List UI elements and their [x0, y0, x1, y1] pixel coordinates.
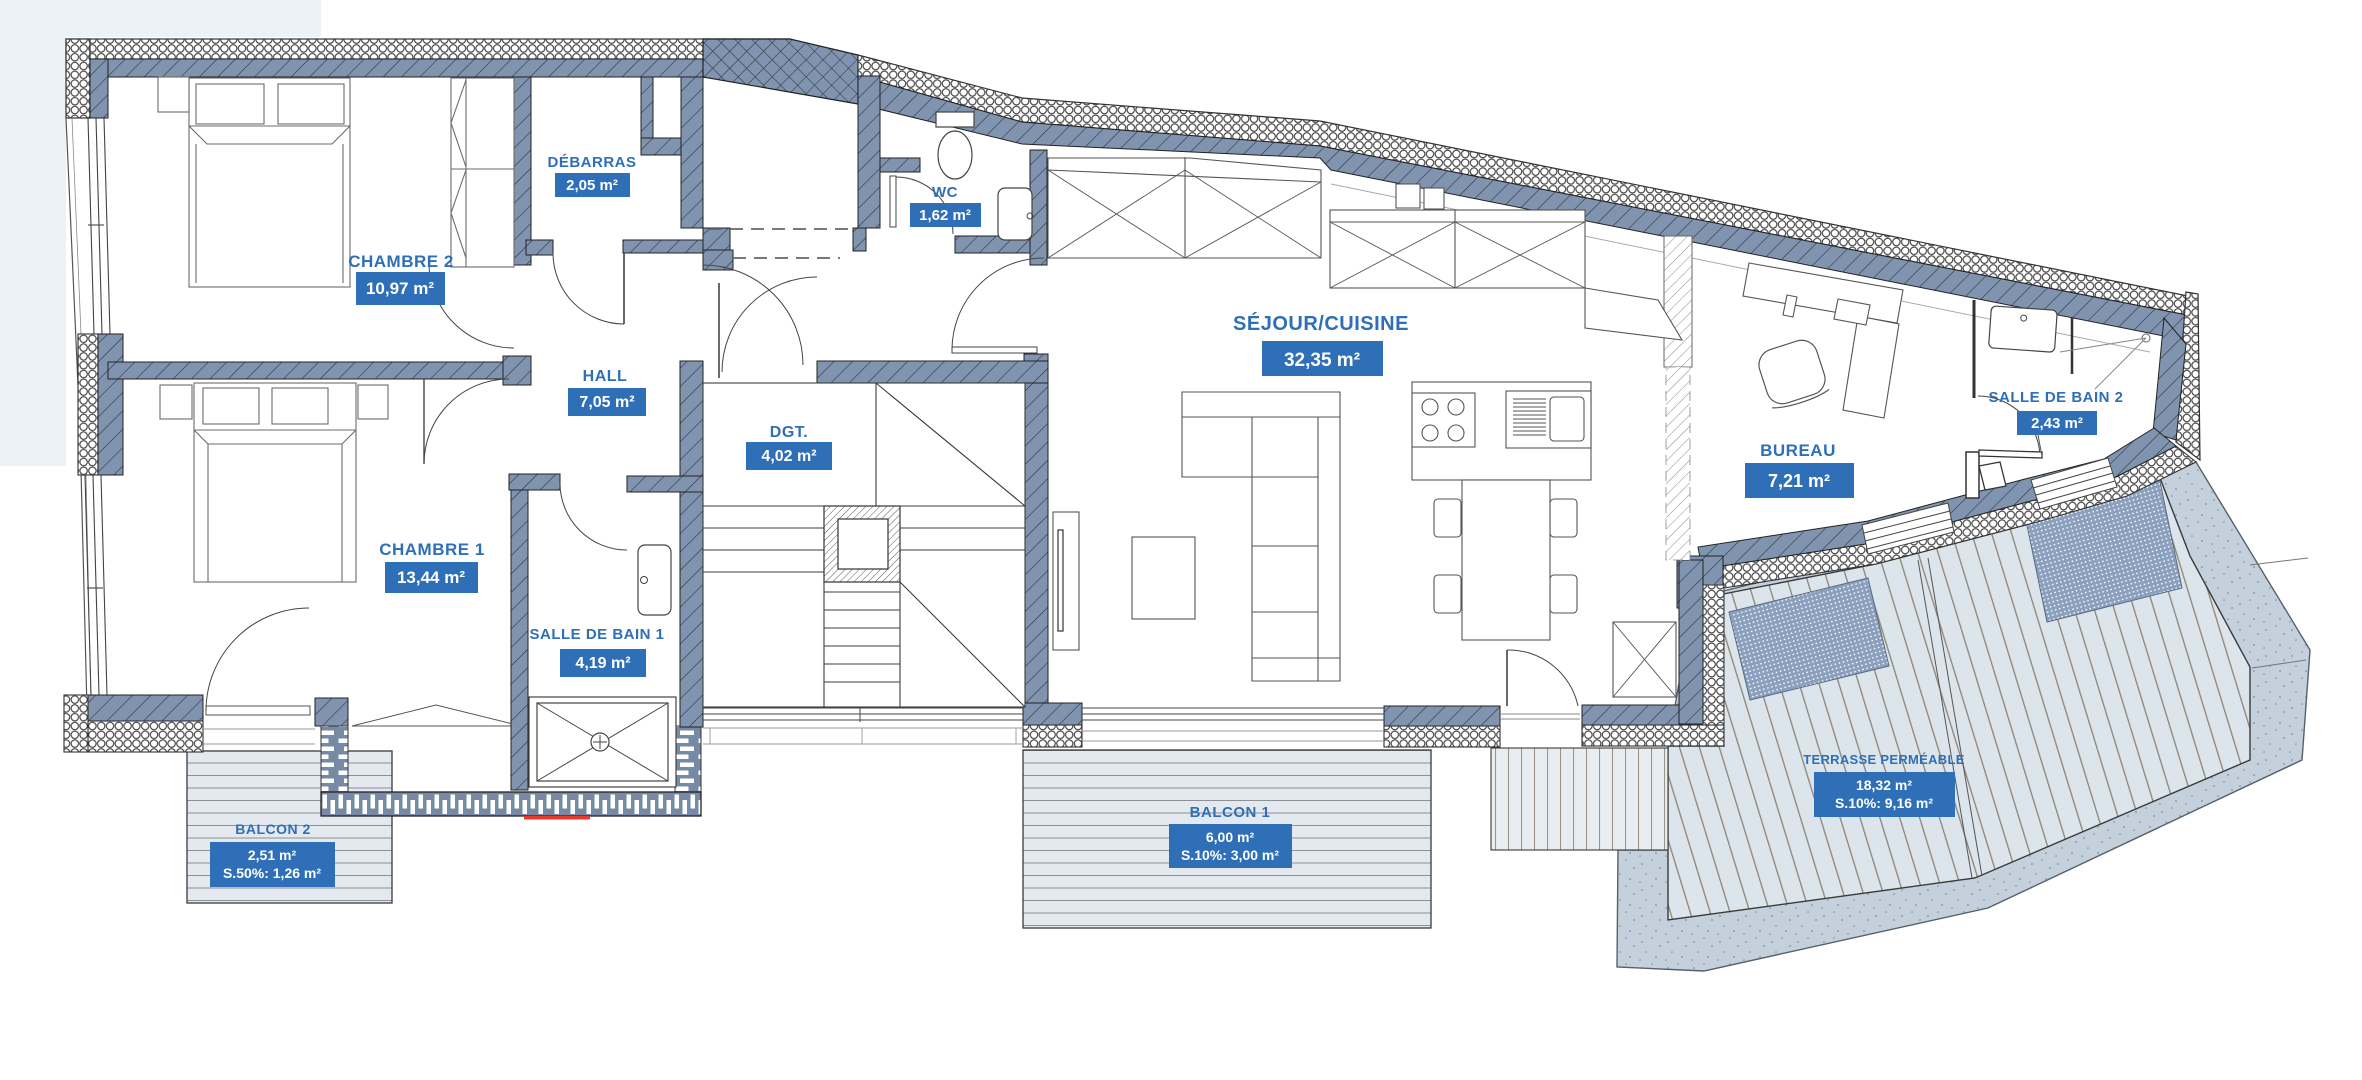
svg-text:4,02 m²: 4,02 m² — [761, 448, 816, 465]
svg-text:7,21 m²: 7,21 m² — [1768, 471, 1830, 491]
svg-text:2,51 m²: 2,51 m² — [248, 847, 297, 863]
svg-text:13,44 m²: 13,44 m² — [397, 568, 465, 587]
svg-text:S.50%: 1,26 m²: S.50%: 1,26 m² — [223, 865, 321, 881]
svg-text:CHAMBRE 2: CHAMBRE 2 — [348, 252, 454, 271]
svg-text:7,05 m²: 7,05 m² — [579, 394, 634, 411]
svg-text:BALCON 2: BALCON 2 — [235, 821, 311, 837]
svg-text:BUREAU: BUREAU — [1760, 441, 1836, 460]
svg-text:SALLE DE BAIN 1: SALLE DE BAIN 1 — [529, 626, 664, 643]
svg-text:SALLE DE BAIN 2: SALLE DE BAIN 2 — [1988, 389, 2123, 406]
svg-text:CHAMBRE 1: CHAMBRE 1 — [379, 540, 485, 559]
svg-text:2,43 m²: 2,43 m² — [2031, 415, 2083, 432]
svg-text:BALCON 1: BALCON 1 — [1190, 804, 1271, 821]
svg-text:TERRASSE PERMÉABLE: TERRASSE PERMÉABLE — [1803, 752, 1964, 767]
svg-text:SÉJOUR/CUISINE: SÉJOUR/CUISINE — [1233, 312, 1409, 335]
svg-text:4,19 m²: 4,19 m² — [575, 655, 630, 672]
svg-text:DÉBARRAS: DÉBARRAS — [547, 154, 636, 171]
svg-text:32,35 m²: 32,35 m² — [1284, 350, 1360, 371]
svg-text:1,62 m²: 1,62 m² — [919, 207, 971, 224]
svg-text:HALL: HALL — [583, 368, 628, 385]
svg-text:S.10%: 3,00 m²: S.10%: 3,00 m² — [1181, 847, 1279, 863]
svg-text:WC: WC — [932, 184, 958, 201]
svg-text:18,32 m²: 18,32 m² — [1856, 777, 1912, 793]
svg-text:DGT.: DGT. — [770, 424, 808, 441]
svg-text:S.10%: 9,16 m²: S.10%: 9,16 m² — [1835, 795, 1933, 811]
svg-text:2,05 m²: 2,05 m² — [566, 177, 618, 194]
svg-text:10,97 m²: 10,97 m² — [366, 279, 434, 298]
svg-text:6,00 m²: 6,00 m² — [1206, 829, 1255, 845]
